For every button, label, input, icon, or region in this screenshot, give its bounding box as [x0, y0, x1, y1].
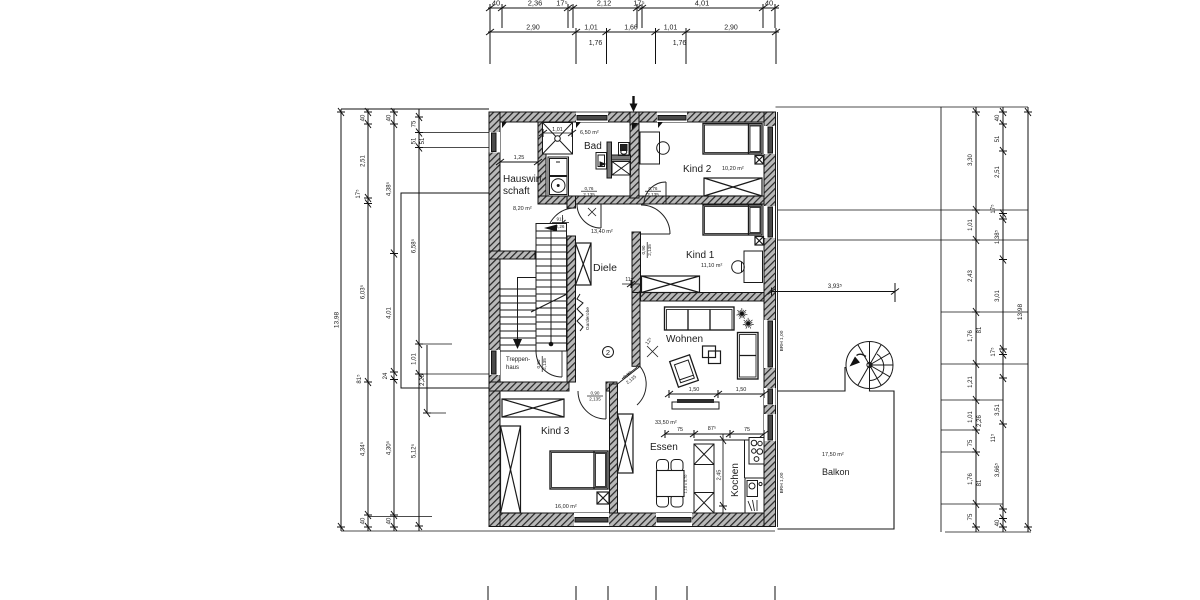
- svg-text:40: 40: [387, 517, 393, 524]
- svg-text:0,80: 0,80: [536, 359, 541, 368]
- svg-text:Garderobe: Garderobe: [585, 307, 591, 330]
- svg-text:4,01: 4,01: [695, 0, 710, 8]
- svg-text:75: 75: [412, 120, 418, 127]
- svg-text:2,26: 2,26: [556, 224, 565, 229]
- svg-text:schaft: schaft: [503, 186, 530, 197]
- svg-text:51: 51: [995, 135, 1001, 142]
- svg-text:2,45: 2,45: [717, 470, 723, 481]
- svg-text:1,76: 1,76: [673, 40, 687, 47]
- svg-text:0,76: 0,76: [585, 186, 594, 191]
- svg-text:40: 40: [995, 519, 1001, 526]
- svg-text:75: 75: [677, 427, 683, 433]
- svg-text:1,01: 1,01: [664, 25, 678, 32]
- svg-text:BRH 1,00: BRH 1,00: [779, 330, 785, 351]
- svg-text:81⁵: 81⁵: [356, 374, 363, 384]
- svg-text:51: 51: [420, 137, 426, 144]
- svg-text:11,10 m²: 11,10 m²: [701, 263, 722, 269]
- svg-text:1,01: 1,01: [968, 219, 974, 231]
- svg-text:87⁵: 87⁵: [708, 425, 716, 432]
- svg-text:Wohnen: Wohnen: [666, 334, 703, 345]
- svg-text:0,90: 0,90: [641, 245, 646, 254]
- svg-text:2,135: 2,135: [647, 192, 659, 197]
- svg-text:2,51: 2,51: [361, 155, 367, 167]
- svg-text:Kind 3: Kind 3: [541, 426, 570, 437]
- svg-text:2,26: 2,26: [420, 374, 426, 386]
- svg-text:2,135: 2,135: [542, 358, 547, 370]
- svg-text:1,76: 1,76: [589, 40, 603, 47]
- svg-text:2,12: 2,12: [597, 0, 612, 8]
- svg-text:Kind 2: Kind 2: [683, 164, 712, 175]
- svg-text:Essen: Essen: [650, 442, 678, 453]
- svg-text:4,01: 4,01: [387, 307, 393, 319]
- svg-text:40: 40: [361, 114, 367, 121]
- svg-text:Kochen: Kochen: [730, 463, 741, 497]
- svg-text:17,50 m²: 17,50 m²: [822, 452, 844, 458]
- svg-text:4,38⁵: 4,38⁵: [386, 181, 393, 196]
- svg-text:8,20 m²: 8,20 m²: [513, 206, 532, 212]
- svg-text:17⁵: 17⁵: [556, 0, 567, 8]
- svg-text:16,00 m²: 16,00 m²: [555, 504, 577, 510]
- svg-text:75: 75: [744, 427, 750, 433]
- svg-text:Diele: Diele: [593, 262, 617, 274]
- svg-text:17⁵: 17⁵: [355, 189, 362, 199]
- svg-text:51: 51: [412, 137, 418, 144]
- svg-text:17⁵: 17⁵: [990, 204, 997, 214]
- svg-text:1,01: 1,01: [412, 353, 418, 365]
- svg-text:1,66: 1,66: [624, 25, 638, 32]
- svg-text:91⁵: 91⁵: [556, 217, 563, 222]
- svg-text:3,51: 3,51: [995, 404, 1001, 416]
- svg-text:2,43: 2,43: [968, 270, 974, 282]
- svg-text:Balkon: Balkon: [822, 467, 850, 477]
- svg-text:13,40 m²: 13,40 m²: [591, 229, 613, 235]
- svg-text:2,51: 2,51: [995, 166, 1001, 178]
- svg-text:1,10 x 0,70: 1,10 x 0,70: [684, 475, 688, 494]
- svg-text:Kind 1: Kind 1: [686, 250, 715, 261]
- svg-text:11⁵: 11⁵: [625, 277, 632, 283]
- svg-text:4,34⁵: 4,34⁵: [360, 441, 367, 456]
- svg-text:17⁵: 17⁵: [990, 347, 997, 357]
- svg-text:40: 40: [387, 114, 393, 121]
- svg-text:2,36: 2,36: [528, 0, 543, 8]
- svg-text:5,12⁵: 5,12⁵: [411, 443, 418, 458]
- svg-text:0,76: 0,76: [649, 186, 658, 191]
- svg-text:3,93⁵: 3,93⁵: [828, 283, 843, 290]
- svg-text:75: 75: [968, 439, 974, 446]
- svg-text:10,20 m²: 10,20 m²: [722, 166, 744, 172]
- svg-text:24: 24: [383, 372, 389, 379]
- svg-text:6,50 m²: 6,50 m²: [580, 130, 599, 136]
- svg-text:2,26: 2,26: [977, 415, 983, 427]
- svg-text:1,01: 1,01: [584, 25, 598, 32]
- svg-text:4,30⁵: 4,30⁵: [386, 440, 393, 455]
- svg-text:1,25: 1,25: [514, 155, 525, 161]
- svg-text:33,50 m²: 33,50 m²: [655, 420, 677, 426]
- svg-text:haus: haus: [506, 365, 519, 371]
- svg-text:40: 40: [765, 0, 773, 8]
- svg-text:40: 40: [995, 114, 1001, 121]
- svg-text:2,90: 2,90: [526, 25, 540, 32]
- svg-text:6,03⁵: 6,03⁵: [360, 284, 367, 299]
- svg-text:3,30: 3,30: [968, 154, 974, 166]
- svg-text:2,135: 2,135: [583, 192, 595, 197]
- svg-text:BRH 1,00: BRH 1,00: [779, 472, 785, 493]
- svg-text:1,01: 1,01: [552, 127, 563, 133]
- svg-text:3,66⁵: 3,66⁵: [994, 462, 1001, 477]
- svg-text:1,76: 1,76: [968, 330, 974, 342]
- svg-text:13,98: 13,98: [334, 311, 341, 328]
- svg-text:Bad: Bad: [584, 141, 602, 152]
- svg-text:1,76: 1,76: [968, 473, 974, 485]
- svg-text:2,90: 2,90: [724, 25, 738, 32]
- svg-text:40: 40: [492, 0, 500, 8]
- svg-text:11⁵: 11⁵: [990, 433, 997, 442]
- svg-text:Treppen-: Treppen-: [506, 357, 530, 363]
- svg-text:2,135: 2,135: [589, 397, 601, 402]
- svg-text:1,21: 1,21: [968, 376, 974, 388]
- svg-text:2,135: 2,135: [647, 244, 652, 256]
- svg-text:81: 81: [977, 479, 983, 486]
- svg-text:3,01: 3,01: [995, 290, 1001, 302]
- svg-text:75: 75: [968, 513, 974, 520]
- svg-text:1,50: 1,50: [689, 387, 700, 393]
- svg-text:2: 2: [606, 348, 610, 357]
- svg-text:Hauswirt-: Hauswirt-: [503, 174, 545, 185]
- svg-text:17⁵: 17⁵: [633, 0, 644, 8]
- svg-text:81: 81: [977, 326, 983, 333]
- svg-text:1,50: 1,50: [736, 387, 747, 393]
- svg-text:1,38⁵: 1,38⁵: [994, 229, 1001, 244]
- svg-text:0,90: 0,90: [591, 391, 600, 396]
- svg-text:1,01: 1,01: [968, 411, 974, 423]
- svg-text:40: 40: [361, 517, 367, 524]
- svg-text:6,58⁵: 6,58⁵: [411, 238, 418, 253]
